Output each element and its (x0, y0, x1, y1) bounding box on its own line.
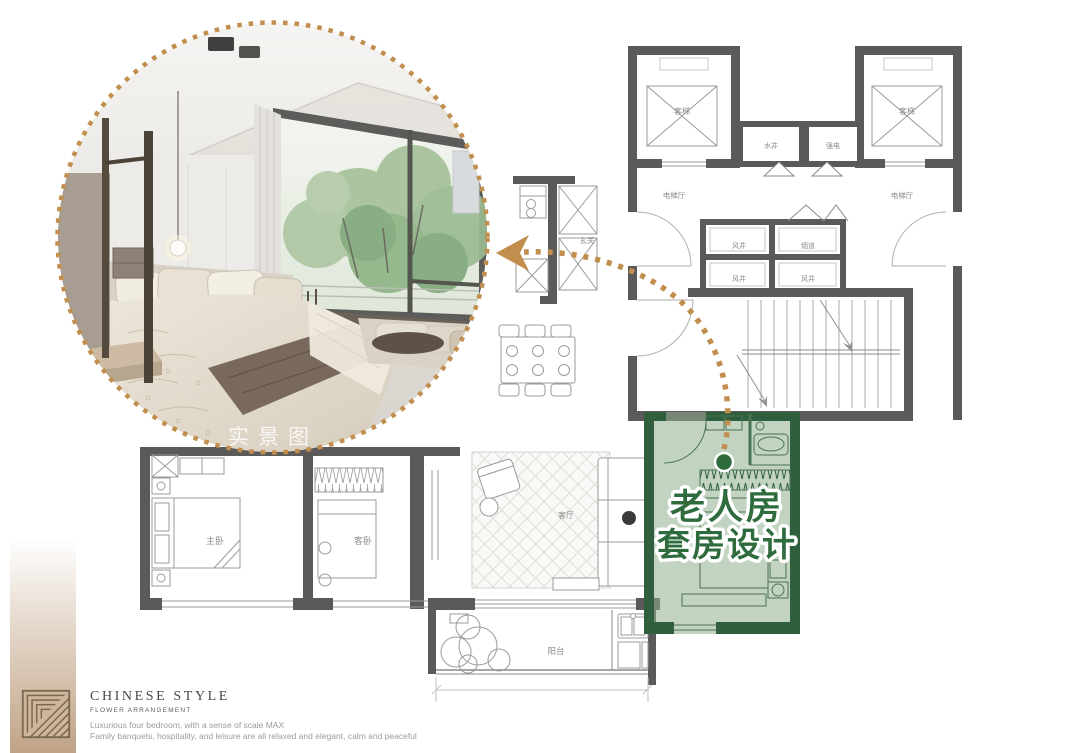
label-elevator-hall-left: 电梯厅 (663, 190, 686, 200)
label-guest-bedroom: 客卧 (354, 535, 372, 546)
bedroom-photo: 实景图 (58, 23, 487, 452)
label-entrance: 玄关 (580, 235, 595, 245)
mid-shaft-block (703, 205, 848, 292)
brand-subtitle: FLOWER ARRANGEMENT (90, 707, 417, 714)
label-water-shaft: 水井 (764, 141, 778, 150)
label-elevator-hall-right: 电梯厅 (891, 190, 914, 200)
callout-title-line1: 老人房 (670, 487, 784, 528)
brand-desc-line2: Family banquets, hospitality, and leisur… (90, 731, 417, 742)
label-elevator-right: 客梯 (899, 106, 915, 116)
label-balcony: 阳台 (547, 646, 564, 656)
label-strong-electric: 强电 (826, 141, 840, 150)
brand-desc-line1: Luxurious four bedroom, with a sense of … (90, 720, 417, 731)
label-elevator-left: 客梯 (674, 106, 690, 116)
label-wind-shaft-top: 风井 (732, 241, 746, 250)
label-wind-shaft-right: 风井 (801, 274, 815, 283)
brand-logo (20, 688, 72, 740)
dining-set (499, 325, 575, 396)
label-living-room: 客厅 (558, 510, 574, 520)
master-bedroom-furniture (152, 455, 240, 586)
label-wind-shaft-mid: 风井 (732, 274, 746, 283)
brand-title: CHINESE STYLE (90, 689, 417, 705)
page-canvas: 客梯 客梯 水井 强电 电梯厅 电梯厅 风井 烟道 风井 风井 玄关 主卧 客卧… (0, 0, 1079, 753)
label-flue: 烟道 (801, 241, 815, 250)
stairwell (628, 288, 913, 421)
callout-title-line2: 套房设计 (657, 525, 797, 564)
footer-block: CHINESE STYLE FLOWER ARRANGEMENT Luxurio… (90, 689, 417, 742)
bedroom-windows (162, 600, 636, 608)
balcony (428, 598, 656, 702)
label-master-bedroom: 主卧 (206, 535, 224, 546)
bedroom-photo-scene (58, 23, 487, 452)
living-room (472, 452, 646, 590)
shaft-rooms (740, 124, 860, 164)
photo-watermark: 实景图 (178, 421, 368, 451)
